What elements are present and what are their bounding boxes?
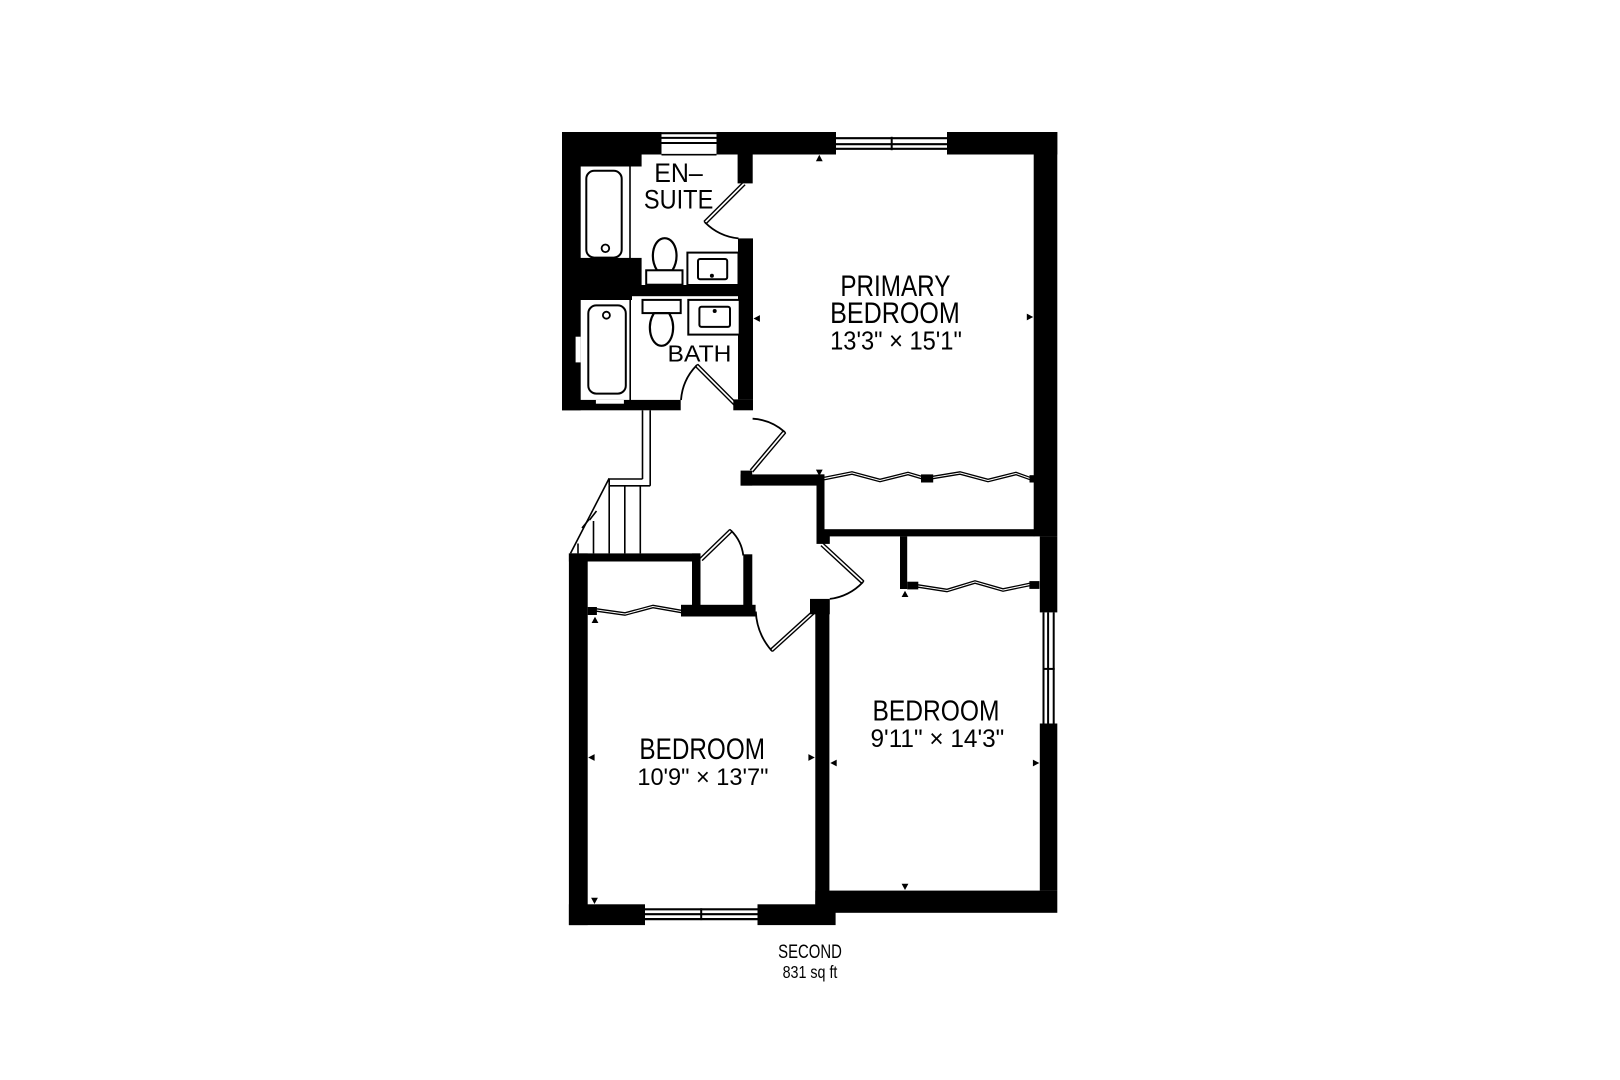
svg-text:9'11" × 14'3": 9'11" × 14'3" [871,725,1005,753]
svg-text:10'9" × 13'7": 10'9" × 13'7" [637,764,768,791]
svg-text:BATH: BATH [668,341,732,367]
svg-text:13'3" × 15'1": 13'3" × 15'1" [830,326,962,356]
svg-text:SECOND: SECOND [778,941,842,963]
svg-text:BEDROOM: BEDROOM [639,733,765,766]
svg-text:SUITE: SUITE [644,184,713,214]
svg-text:831 sq ft: 831 sq ft [783,962,838,982]
svg-text:BEDROOM: BEDROOM [873,695,1000,727]
